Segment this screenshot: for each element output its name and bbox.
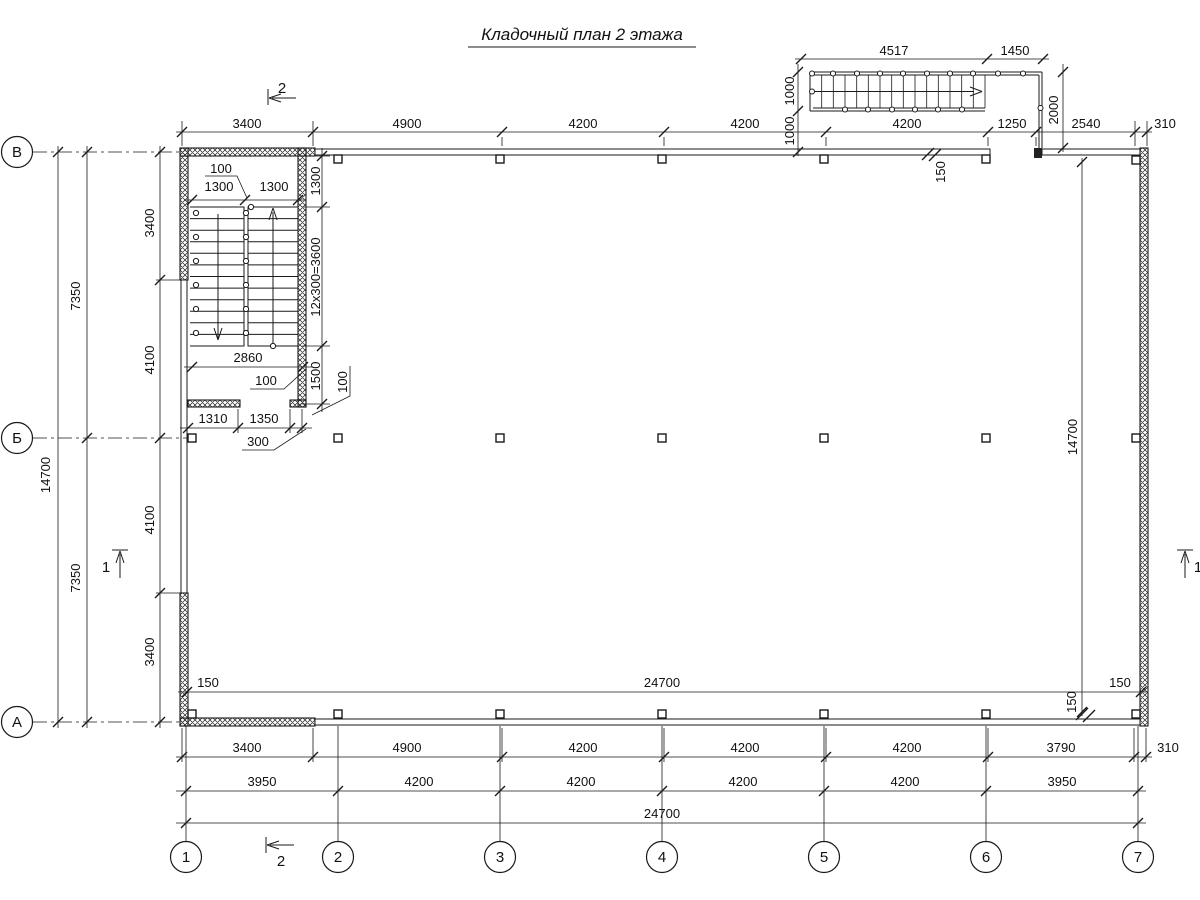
column xyxy=(188,710,196,718)
dim-stair-300: 300 xyxy=(247,434,269,449)
dim-stair-wall100: 100 xyxy=(255,373,277,388)
dim-stair-100gap: 100 xyxy=(210,161,232,176)
dim-b1-3400: 3400 xyxy=(233,740,262,755)
column xyxy=(820,434,828,442)
column xyxy=(188,434,196,442)
interior-stair xyxy=(190,204,298,348)
drawing-page: Кладочный план 2 этажа xyxy=(0,0,1200,900)
drawing-title: Кладочный план 2 этажа xyxy=(481,25,683,44)
dim-wall150-top: 150 xyxy=(933,161,948,183)
dimension-labels: 3400 4900 4200 4200 4200 1250 2540 310 4… xyxy=(38,43,1179,821)
section-2-label-top: 2 xyxy=(278,80,286,97)
section-1-label-left: 1 xyxy=(102,559,110,576)
dim-b1-4200c: 4200 xyxy=(893,740,922,755)
grid-label-1: 1 xyxy=(182,849,190,866)
grid-label-2: 2 xyxy=(334,849,342,866)
dim-stair-1310: 1310 xyxy=(199,411,228,426)
top-wall-door-pier xyxy=(1034,148,1042,158)
right-wall-hatched xyxy=(1140,148,1148,726)
stair-gap-mask xyxy=(244,206,247,346)
dim-stair-run: 12x300=3600 xyxy=(308,237,323,316)
section-1-label-right: 1 xyxy=(1194,559,1200,576)
column xyxy=(982,155,990,163)
grid-row-lines xyxy=(33,152,188,722)
column xyxy=(496,434,504,442)
dim-stair-1350: 1350 xyxy=(250,411,279,426)
bottom-wall-thin xyxy=(315,719,1140,725)
dim-b1-4200a: 4200 xyxy=(569,740,598,755)
grid-label-row-b: Б xyxy=(12,430,22,447)
grid-label-6: 6 xyxy=(982,849,990,866)
exterior-stair xyxy=(810,71,1044,148)
section-2-marker-bottom xyxy=(266,837,294,853)
dim-ext-1000a: 1000 xyxy=(782,77,797,106)
dim-top-2540: 2540 xyxy=(1072,116,1101,131)
top-wall-thin xyxy=(315,149,990,155)
column xyxy=(658,434,666,442)
dim-stair-1300r: 1300 xyxy=(260,179,289,194)
column xyxy=(982,434,990,442)
dim-top-4200b: 4200 xyxy=(731,116,760,131)
dim-top-4200c: 4200 xyxy=(893,116,922,131)
dim-top-4900: 4900 xyxy=(393,116,422,131)
dim-stair-1500: 1500 xyxy=(308,362,323,391)
column xyxy=(1132,434,1140,442)
left-wall-thin xyxy=(181,280,187,593)
exterior-stair-direction-arrow xyxy=(814,87,982,96)
dim-left-14700: 14700 xyxy=(38,457,53,493)
bottom-wall-hatched xyxy=(180,718,315,726)
left-wall-hatched-bottom xyxy=(180,593,188,726)
column xyxy=(334,434,342,442)
dim-inner-24700: 24700 xyxy=(644,675,680,690)
dim-b2-3950b: 3950 xyxy=(1048,774,1077,789)
dim-b2-4200b: 4200 xyxy=(567,774,596,789)
top-wall-hatched xyxy=(180,148,315,156)
dim-b2-4200c: 4200 xyxy=(729,774,758,789)
dim-left-4100a: 4100 xyxy=(142,346,157,375)
column xyxy=(496,710,504,718)
stairwell-stub-wall-right xyxy=(290,400,306,407)
section-2-label-bottom: 2 xyxy=(277,853,285,870)
dim-left-7350a: 7350 xyxy=(68,282,83,311)
grid-label-row-a: А xyxy=(12,714,22,731)
dim-b1-4200b: 4200 xyxy=(731,740,760,755)
column xyxy=(1132,710,1140,718)
columns xyxy=(188,155,1140,718)
dim-top-1250: 1250 xyxy=(998,116,1027,131)
section-1-marker-left xyxy=(112,550,128,578)
column xyxy=(982,710,990,718)
column xyxy=(658,710,666,718)
column xyxy=(658,155,666,163)
grid-label-3: 3 xyxy=(496,849,504,866)
dim-left-3400a: 3400 xyxy=(142,209,157,238)
column xyxy=(334,710,342,718)
grid-label-row-v: В xyxy=(12,144,22,161)
grid-label-4: 4 xyxy=(658,849,666,866)
dim-inner-150l: 150 xyxy=(197,675,219,690)
dim-left-7350b: 7350 xyxy=(68,564,83,593)
column xyxy=(820,710,828,718)
dim-ext-1000b: 1000 xyxy=(782,117,797,146)
column xyxy=(820,155,828,163)
top-wall-thin-right xyxy=(1042,149,1140,155)
dim-b1-310: 310 xyxy=(1157,740,1179,755)
left-wall-hatched-top xyxy=(180,148,188,280)
grid-label-5: 5 xyxy=(820,849,828,866)
dim-left-3400b: 3400 xyxy=(142,638,157,667)
dim-ext-1450: 1450 xyxy=(1001,43,1030,58)
dim-b1-3790: 3790 xyxy=(1047,740,1076,755)
dim-stair-1300l: 1300 xyxy=(205,179,234,194)
dim-b2-4200d: 4200 xyxy=(891,774,920,789)
dim-ext-2000: 2000 xyxy=(1046,96,1061,125)
stairwell-stub-wall-left xyxy=(188,400,240,407)
dim-top-4200a: 4200 xyxy=(569,116,598,131)
column xyxy=(496,155,504,163)
dim-right-14700: 14700 xyxy=(1065,419,1080,455)
section-1-marker-right xyxy=(1177,550,1193,578)
dim-stair-2860: 2860 xyxy=(234,350,263,365)
dim-b1-4900: 4900 xyxy=(393,740,422,755)
dim-wall150-bottom: 150 xyxy=(1064,691,1079,713)
dim-b2-4200a: 4200 xyxy=(405,774,434,789)
dim-inner-150r: 150 xyxy=(1109,675,1131,690)
dim-b2-3950a: 3950 xyxy=(248,774,277,789)
floor-plan-canvas: Кладочный план 2 этажа xyxy=(0,0,1200,900)
grid-markers: 1 2 3 4 5 6 7 В Б А xyxy=(2,137,1154,873)
column xyxy=(1132,156,1140,164)
grid-label-7: 7 xyxy=(1134,849,1142,866)
dim-b3-24700: 24700 xyxy=(644,806,680,821)
dim-top-310: 310 xyxy=(1154,116,1176,131)
column xyxy=(334,155,342,163)
dim-stair-v100: 100 xyxy=(335,371,350,393)
dim-ext-4517: 4517 xyxy=(880,43,909,58)
dim-stair-v1300: 1300 xyxy=(308,167,323,196)
section-markers: 2 2 1 1 xyxy=(102,80,1200,870)
grid-column-lines xyxy=(186,726,1138,841)
leader-lines xyxy=(205,176,350,450)
dim-left-4100b: 4100 xyxy=(142,506,157,535)
dim-top-3400: 3400 xyxy=(233,116,262,131)
ticks-exterior-stair xyxy=(793,54,1068,157)
